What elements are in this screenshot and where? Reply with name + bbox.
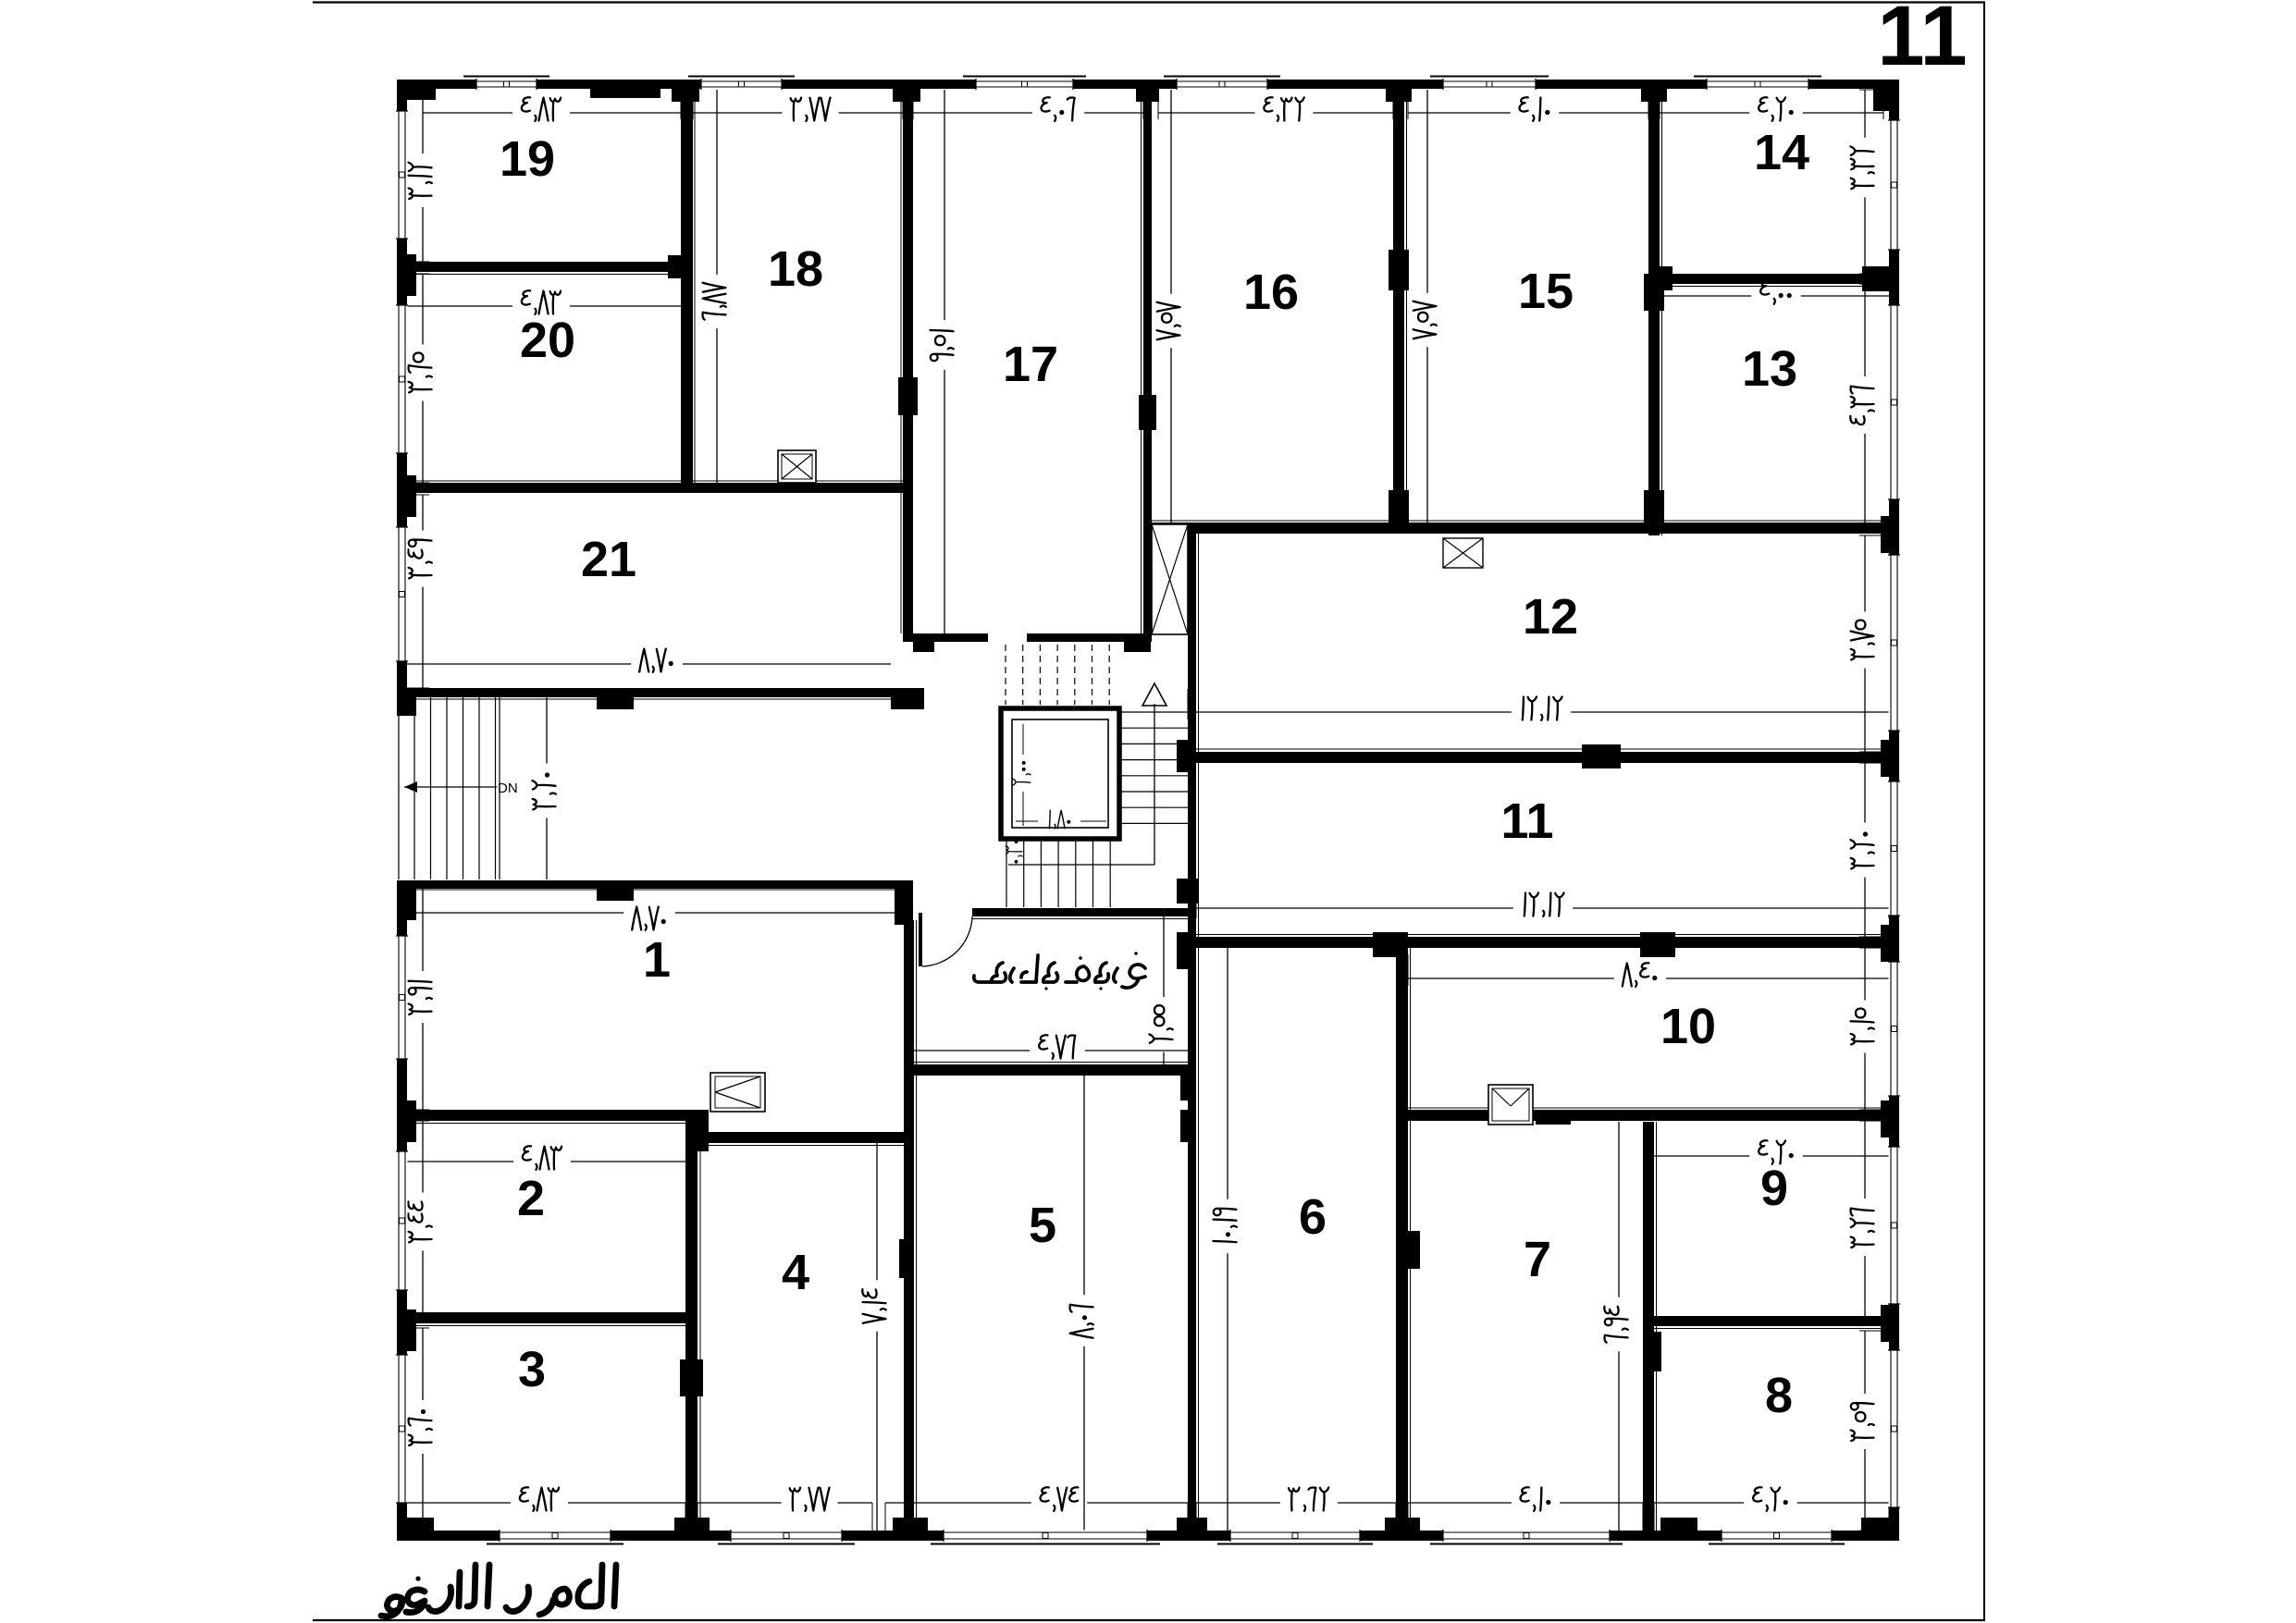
svg-text:12: 12	[1523, 589, 1578, 645]
svg-text:10: 10	[1660, 999, 1716, 1054]
svg-text:DN: DN	[498, 781, 518, 796]
svg-text:16: 16	[1243, 264, 1299, 320]
svg-text:18: 18	[768, 241, 823, 297]
svg-text:20: 20	[520, 313, 575, 368]
svg-text:9: 9	[1760, 1161, 1788, 1216]
svg-text:13: 13	[1742, 341, 1797, 397]
svg-text:11: 11	[1877, 0, 1967, 83]
svg-text:4: 4	[782, 1245, 809, 1300]
svg-text:11: 11	[1500, 793, 1553, 849]
svg-text:5: 5	[1029, 1198, 1056, 1253]
svg-text:2: 2	[517, 1171, 545, 1226]
svg-text:3: 3	[518, 1342, 546, 1397]
svg-text:8: 8	[1765, 1368, 1793, 1423]
svg-text:14: 14	[1754, 125, 1809, 180]
svg-text:6: 6	[1299, 1189, 1327, 1245]
svg-text:21: 21	[581, 532, 636, 587]
svg-text:1: 1	[643, 932, 671, 988]
svg-text:7: 7	[1524, 1232, 1551, 1287]
svg-text:17: 17	[1003, 337, 1058, 392]
svg-text:15: 15	[1518, 264, 1574, 319]
svg-text:19: 19	[500, 131, 555, 187]
